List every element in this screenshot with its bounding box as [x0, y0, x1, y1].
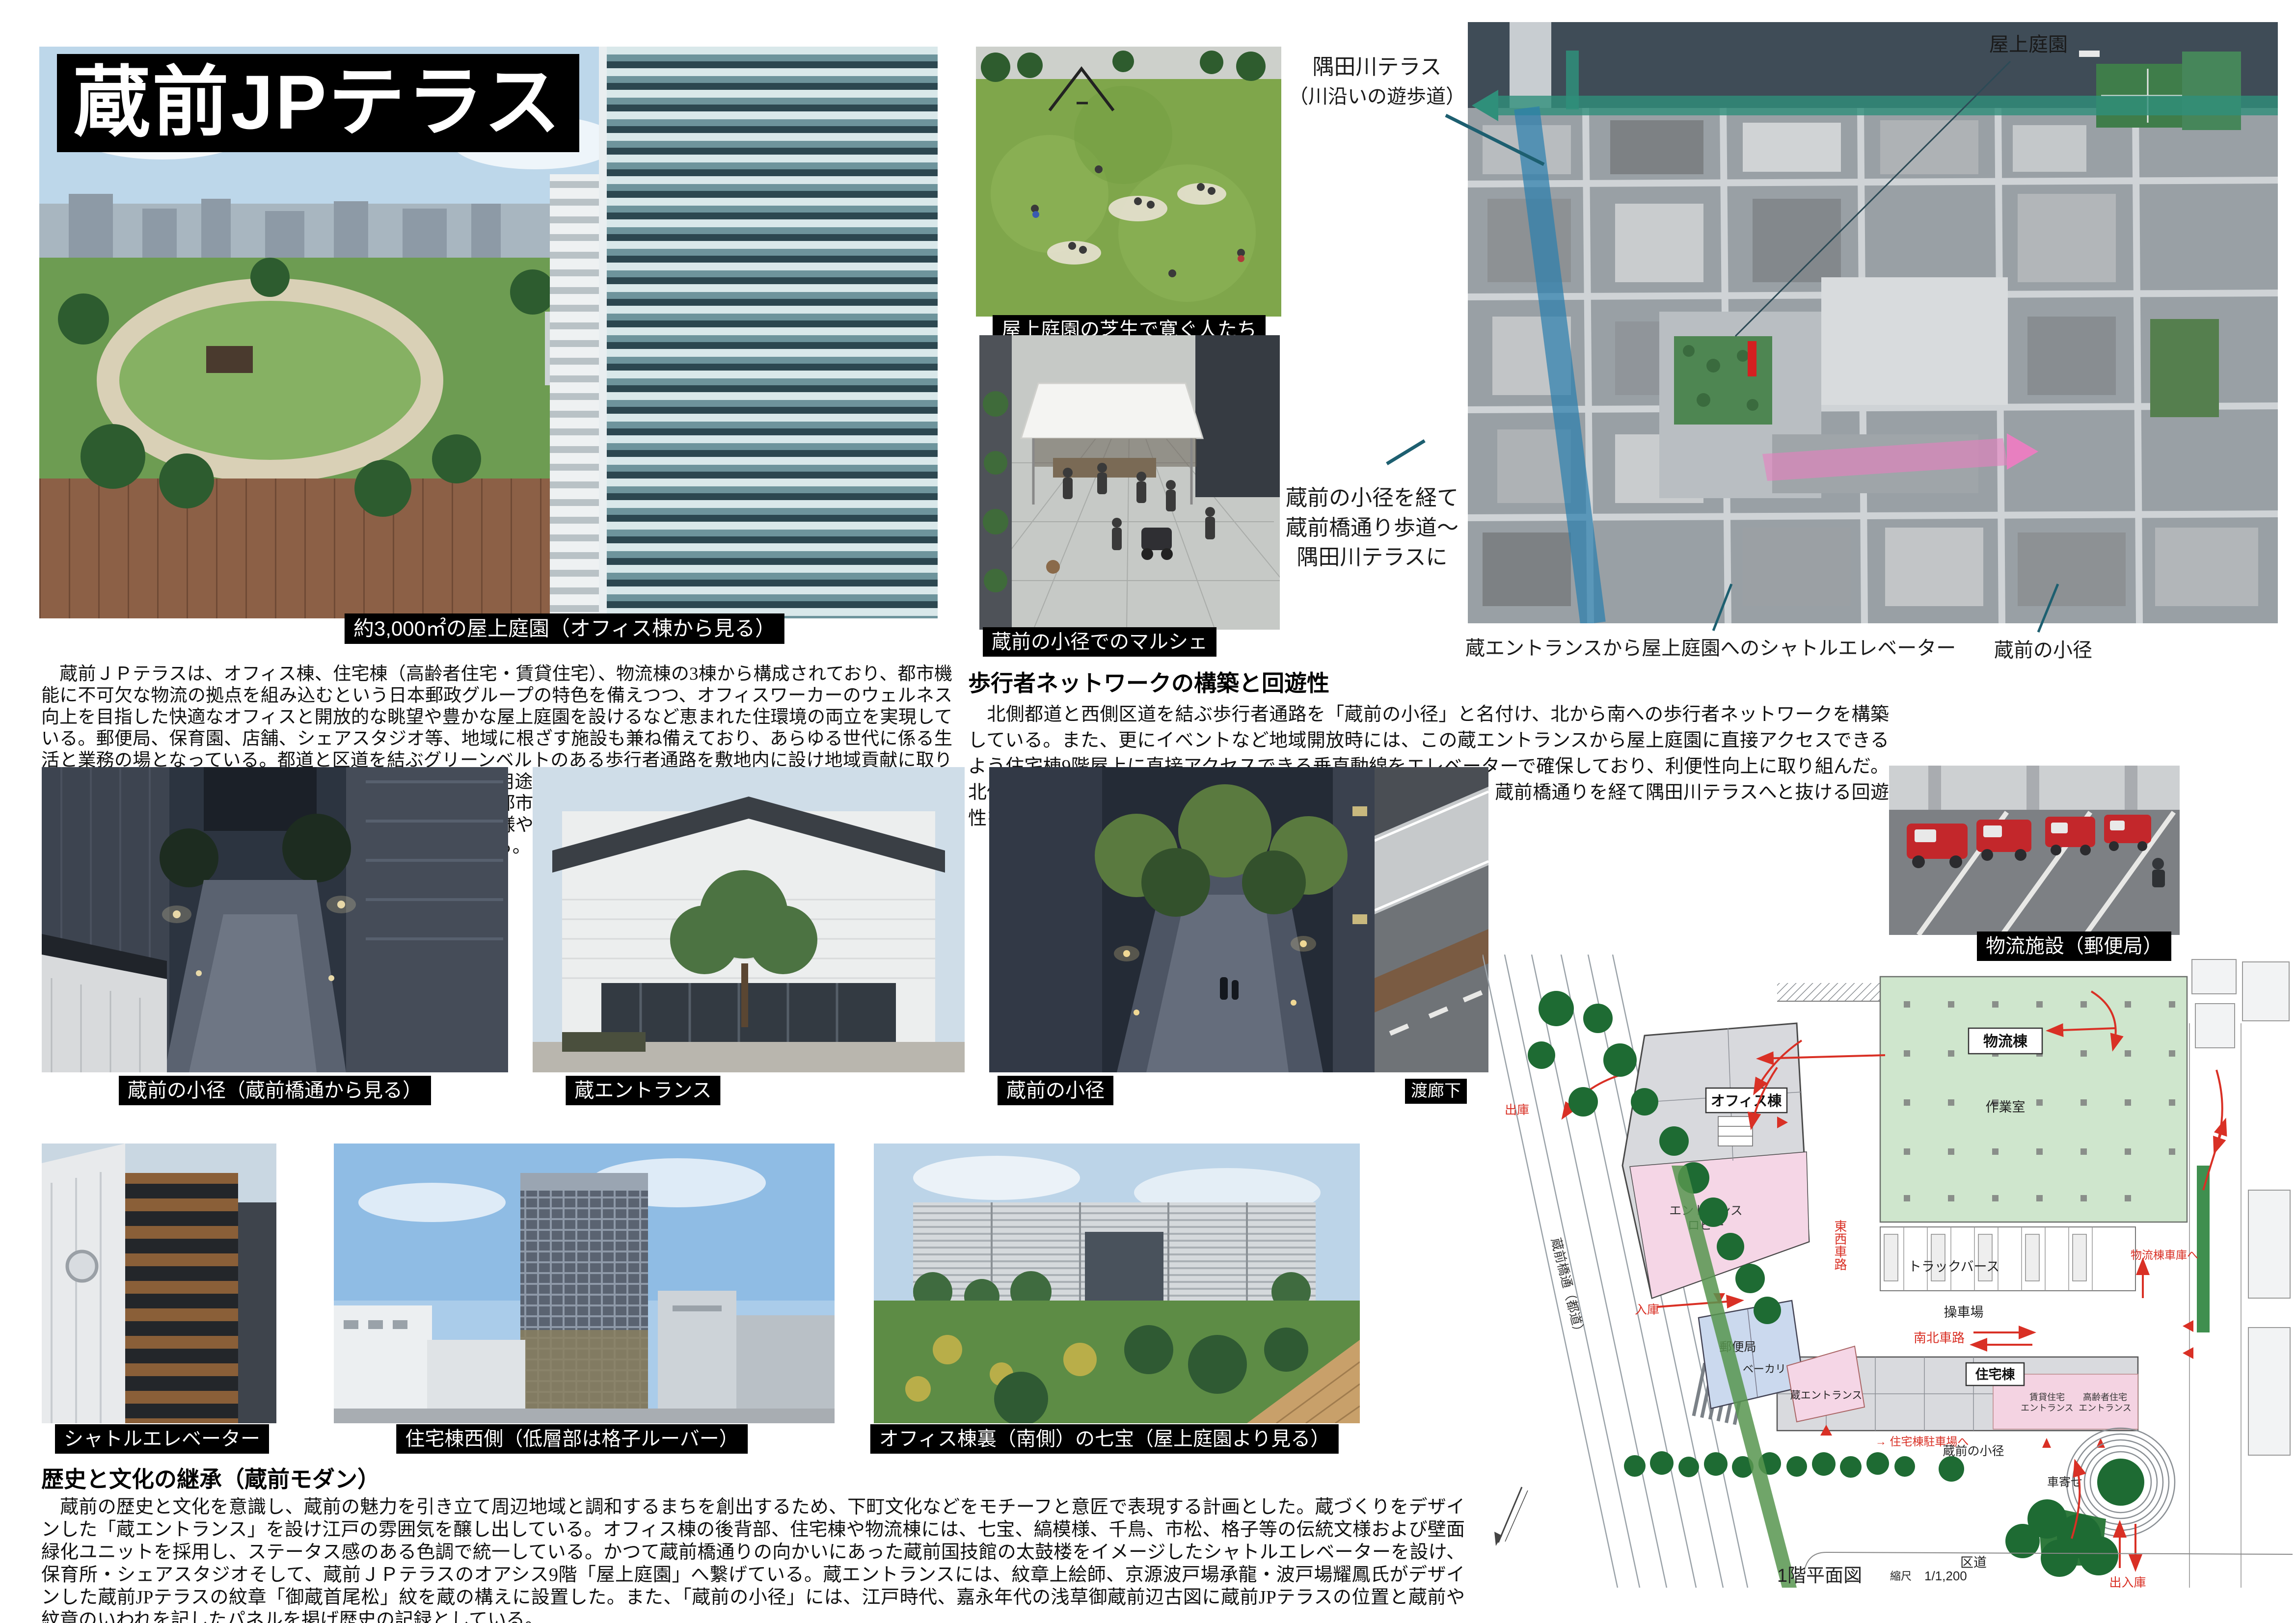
- aerial-illustration: [1468, 22, 2278, 623]
- plan-caption-title: 1階平面図: [1777, 1566, 1862, 1586]
- lawn-photo: [976, 47, 1281, 317]
- corridor-photo: [1375, 767, 1488, 1072]
- label-senior-entrance-2: エントランス: [2079, 1403, 2132, 1413]
- office-back-caption: オフィス棟裏（南側）の七宝（屋上庭園より見る）: [870, 1424, 1339, 1454]
- label-senior-entrance-1: 高齢者住宅: [2083, 1392, 2127, 1402]
- residence-west-illustration: [334, 1144, 835, 1423]
- plan-caption-scale-value: 1/1,200: [1924, 1569, 1967, 1583]
- annotation-rooftop-garden: 屋上庭園: [1989, 28, 2068, 57]
- label-truck-berth: トラックバース: [1908, 1259, 1999, 1274]
- label-office-building: オフィス棟: [1711, 1093, 1782, 1109]
- night-path-caption: 蔵前の小径: [998, 1076, 1113, 1105]
- night-alley-photo: [42, 767, 508, 1072]
- shuttle-elevator-photo: [42, 1144, 276, 1423]
- lawn-illustration: [976, 47, 1281, 317]
- corridor-caption: 渡廊下: [1405, 1079, 1467, 1104]
- label-kura-entrance: 蔵エントランス: [1790, 1390, 1863, 1401]
- label-residence-building: 住宅棟: [1975, 1367, 2016, 1382]
- label-logistics-building: 物流棟: [1983, 1034, 2028, 1050]
- office-back-illustration: [874, 1144, 1360, 1423]
- green-plaza: [2005, 1499, 2118, 1577]
- night-alley-illustration: [42, 767, 508, 1072]
- corridor-illustration: [1375, 767, 1488, 1072]
- page-title: 蔵前JPテラス: [57, 54, 579, 152]
- green-strip-east: [2197, 1166, 2210, 1332]
- history-heading: 歴史と文化の継承（蔵前モダン）: [41, 1462, 380, 1494]
- label-rental-entrance-2: エントランス: [2021, 1403, 2074, 1413]
- annotation-route-line1: 蔵前の小径を経て: [1286, 486, 1459, 510]
- residence-west-caption: 住宅棟西側（低層部は格子ルーバー）: [396, 1424, 748, 1454]
- truck-berth: トラックバース: [1880, 1227, 2135, 1291]
- office-building: オフィス棟 エントランス ロビー: [1622, 1023, 1809, 1304]
- label-yard: 操車場: [1944, 1305, 1984, 1320]
- site-plan: 物流棟 作業室 トラックバース 操車場 南北車路: [1483, 955, 2293, 1588]
- aerial-photo: [1468, 22, 2278, 623]
- main-photo-caption: 約3,000㎡の屋上庭園（オフィス棟から見る）: [345, 613, 784, 644]
- annotation-sumida-line1: 隅田川テラス: [1312, 55, 1441, 79]
- label-exit: 出庫: [1505, 1103, 1529, 1117]
- logistics-building: 物流棟 作業室: [1880, 977, 2187, 1222]
- history-paragraph: 蔵前の歴史と文化を意識し、蔵前の魅力を引き立て周辺地域と調和するまちを創出するた…: [41, 1496, 1465, 1623]
- label-in-out: 出入庫: [2109, 1576, 2146, 1588]
- annotation-sumida-line2: （川沿いの遊歩道）: [1286, 80, 1468, 109]
- plan-caption-scale-label: 縮尺: [1890, 1570, 1912, 1582]
- north-arrow-icon: [1494, 1487, 1528, 1546]
- logistics-photo: [1889, 766, 2180, 935]
- label-rental-entrance-1: 賃貸住宅: [2029, 1392, 2065, 1402]
- annotation-route: 蔵前の小径を経て 蔵前橋通り歩道〜 隅田川テラスに: [1276, 483, 1468, 573]
- annotation-route-line3: 隅田川テラスに: [1276, 543, 1468, 573]
- presentation-board: 蔵前JPテラス 約3,000㎡の屋上庭園（オフィス棟から見る）: [0, 0, 2296, 1623]
- label-komichi: 蔵前の小径: [1943, 1444, 2004, 1458]
- shuttle-elevator-illustration: [42, 1144, 276, 1423]
- label-workroom: 作業室: [1986, 1100, 2026, 1115]
- annotation-shuttle-elevator: 蔵エントランスから屋上庭園へのシャトルエレベーター: [1465, 632, 1956, 661]
- label-ew-road: 東西車路: [1833, 1220, 1847, 1271]
- annotation-route-line2: 蔵前橋通り歩道〜: [1276, 513, 1468, 543]
- label-to-logistics-garage: 物流棟車庫へ: [2131, 1249, 2198, 1261]
- kura-entrance-photo: [533, 767, 965, 1072]
- logistics-illustration: [1889, 766, 2180, 935]
- residence-west-photo: [334, 1144, 835, 1423]
- marche-photo-caption: 蔵前の小径でのマルシェ: [983, 627, 1216, 657]
- label-ward-road: 区道: [1960, 1555, 1987, 1570]
- annotation-komichi: 蔵前の小径: [1994, 634, 2092, 663]
- marche-photo: [979, 335, 1280, 630]
- annotation-sumida-terrace: 隅田川テラス （川沿いの遊歩道）: [1286, 49, 1468, 109]
- marche-illustration: [979, 335, 1280, 630]
- komichi-trees: [1624, 1451, 1964, 1482]
- site-plan-drawing: 物流棟 作業室 トラックバース 操車場 南北車路: [1483, 955, 2293, 1588]
- pedestrian-heading: 歩行者ネットワークの構築と回遊性: [968, 665, 1329, 698]
- label-enter: 入庫: [1635, 1303, 1659, 1317]
- kura-entrance-caption: 蔵エントランス: [566, 1076, 720, 1105]
- night-alley-caption: 蔵前の小径（蔵前橋通から見る）: [119, 1076, 431, 1105]
- kura-entrance-illustration: [533, 767, 965, 1072]
- office-back-photo: [874, 1144, 1360, 1423]
- label-ns-road: 南北車路: [1914, 1330, 1965, 1345]
- label-porch: 車寄せ: [2047, 1476, 2082, 1489]
- shuttle-elevator-caption: シャトルエレベーター: [55, 1424, 269, 1454]
